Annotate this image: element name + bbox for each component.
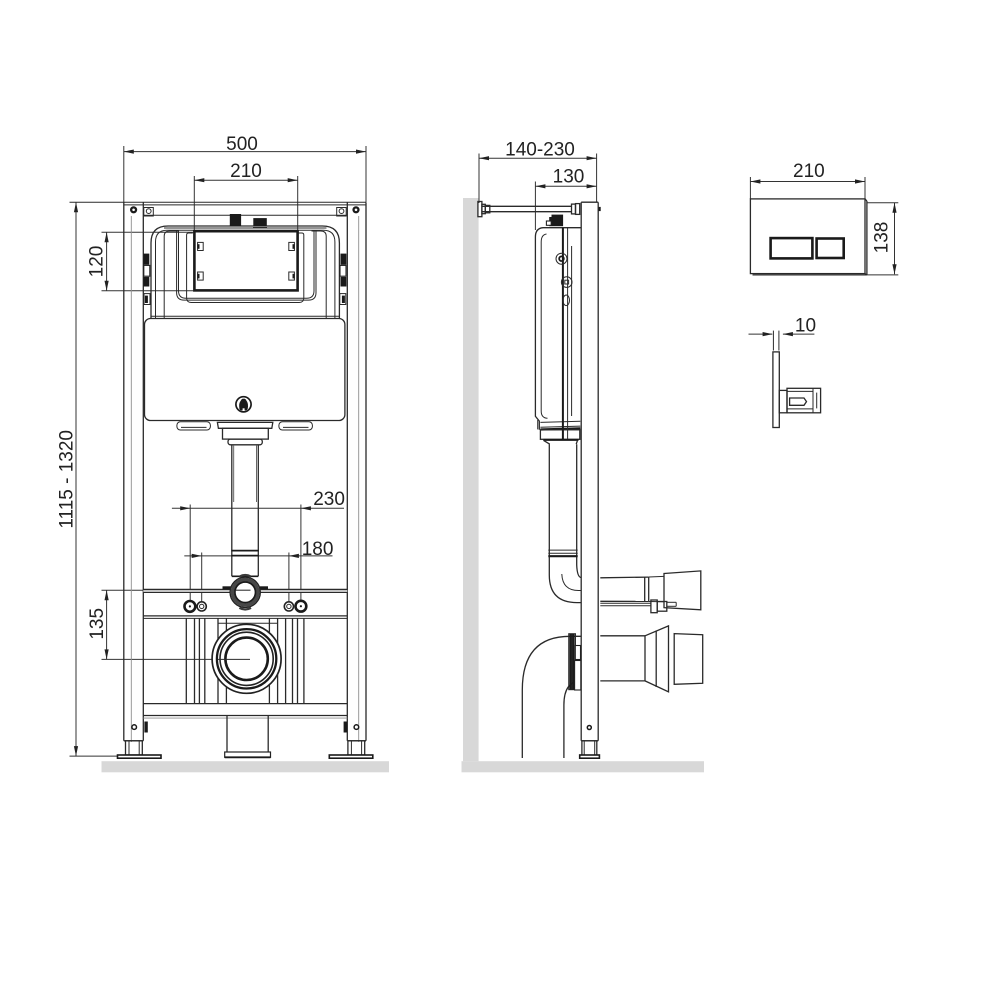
svg-text:210: 210: [230, 161, 262, 182]
svg-text:140-230: 140-230: [505, 140, 575, 161]
svg-text:130: 130: [553, 167, 585, 188]
svg-text:10: 10: [795, 316, 816, 337]
svg-text:138: 138: [871, 222, 892, 254]
svg-text:135: 135: [87, 608, 108, 640]
svg-text:180: 180: [302, 539, 334, 560]
svg-text:1115 - 1320: 1115 - 1320: [56, 430, 77, 529]
svg-text:230: 230: [313, 489, 345, 510]
svg-text:120: 120: [87, 246, 108, 278]
svg-text:210: 210: [793, 161, 825, 182]
